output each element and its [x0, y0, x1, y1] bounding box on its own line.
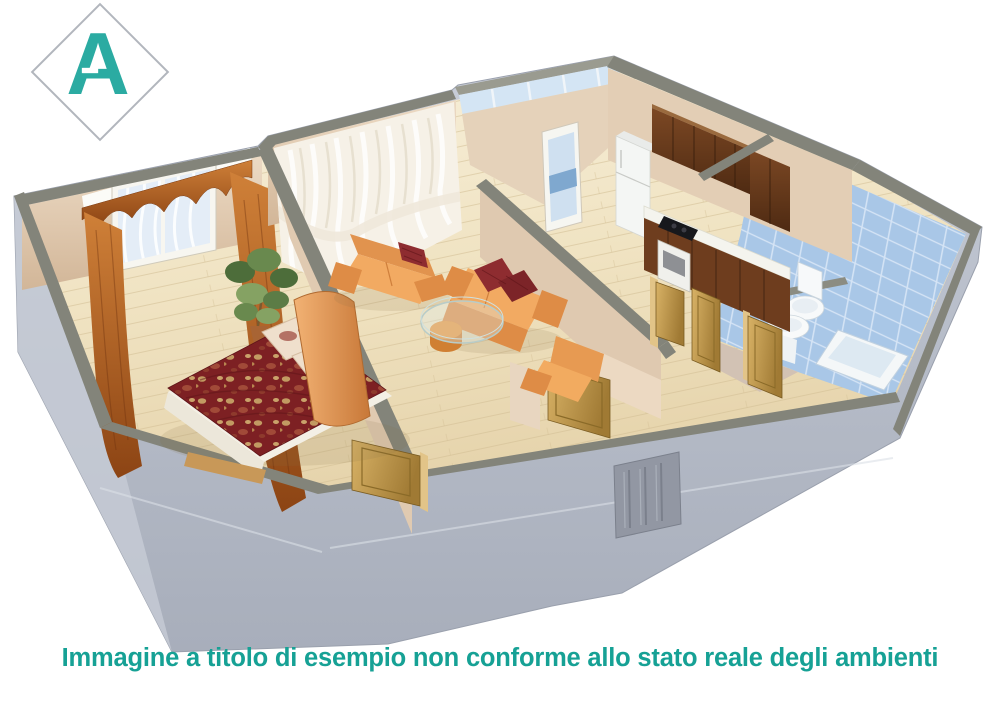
balcony-window-door: [542, 122, 582, 232]
logo-letter: A: [30, 0, 166, 132]
entry-door: [614, 452, 681, 538]
disclaimer-caption: Immagine a titolo di esempio non conform…: [0, 644, 1000, 673]
logo-microtext-strip: [82, 68, 98, 73]
agency-logo: A: [30, 2, 166, 138]
table-glass-top: [421, 301, 503, 343]
placeholder-image: A Immagine a titolo di esempio non confo…: [0, 0, 1000, 707]
toilet-door: [692, 288, 720, 372]
